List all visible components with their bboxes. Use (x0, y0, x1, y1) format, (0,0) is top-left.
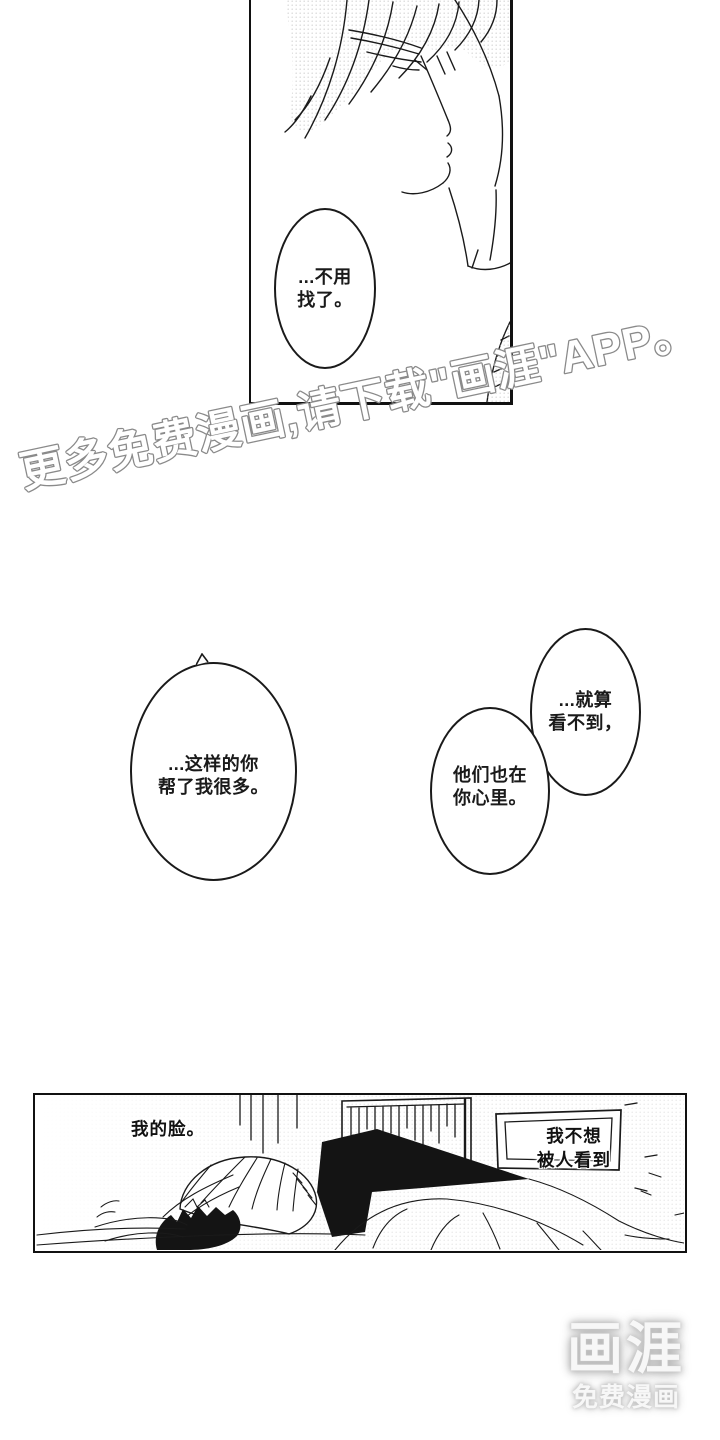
caption-line: 被人看到 (531, 1148, 617, 1172)
speech-line: 他们也在 (453, 764, 527, 787)
speech-bubble-left: ...这样的你 帮了我很多。 (130, 662, 297, 881)
caption-dont-want-seen: 我不想 被人看到 (531, 1124, 617, 1172)
huaya-logo-subtitle: 免费漫画 (556, 1381, 696, 1413)
caption-my-face: 我的脸。 (131, 1117, 205, 1141)
speech-line: ...不用 (298, 266, 352, 289)
speech-line: 找了。 (297, 289, 353, 312)
speech-bubble-top: ...不用 找了。 (274, 208, 376, 369)
speech-bubble-right-bottom: 他们也在 你心里。 (430, 707, 550, 875)
huaya-logo-title: 画涯 (556, 1318, 696, 1380)
speech-line: ...就算 (559, 689, 613, 712)
caption-line: 我不想 (531, 1124, 617, 1148)
speech-line: 帮了我很多。 (158, 776, 269, 799)
speech-line: 看不到， (549, 712, 623, 735)
speech-bubble-left-tail (196, 653, 210, 667)
speech-line: ...这样的你 (168, 753, 259, 776)
huaya-logo: 画涯 免费漫画 (556, 1318, 696, 1413)
manga-page: ...不用 找了。 更多免费漫画,请下载"画涯"APP。 ...这样的你 帮了我… (0, 0, 720, 1440)
speech-line: 你心里。 (453, 787, 527, 810)
